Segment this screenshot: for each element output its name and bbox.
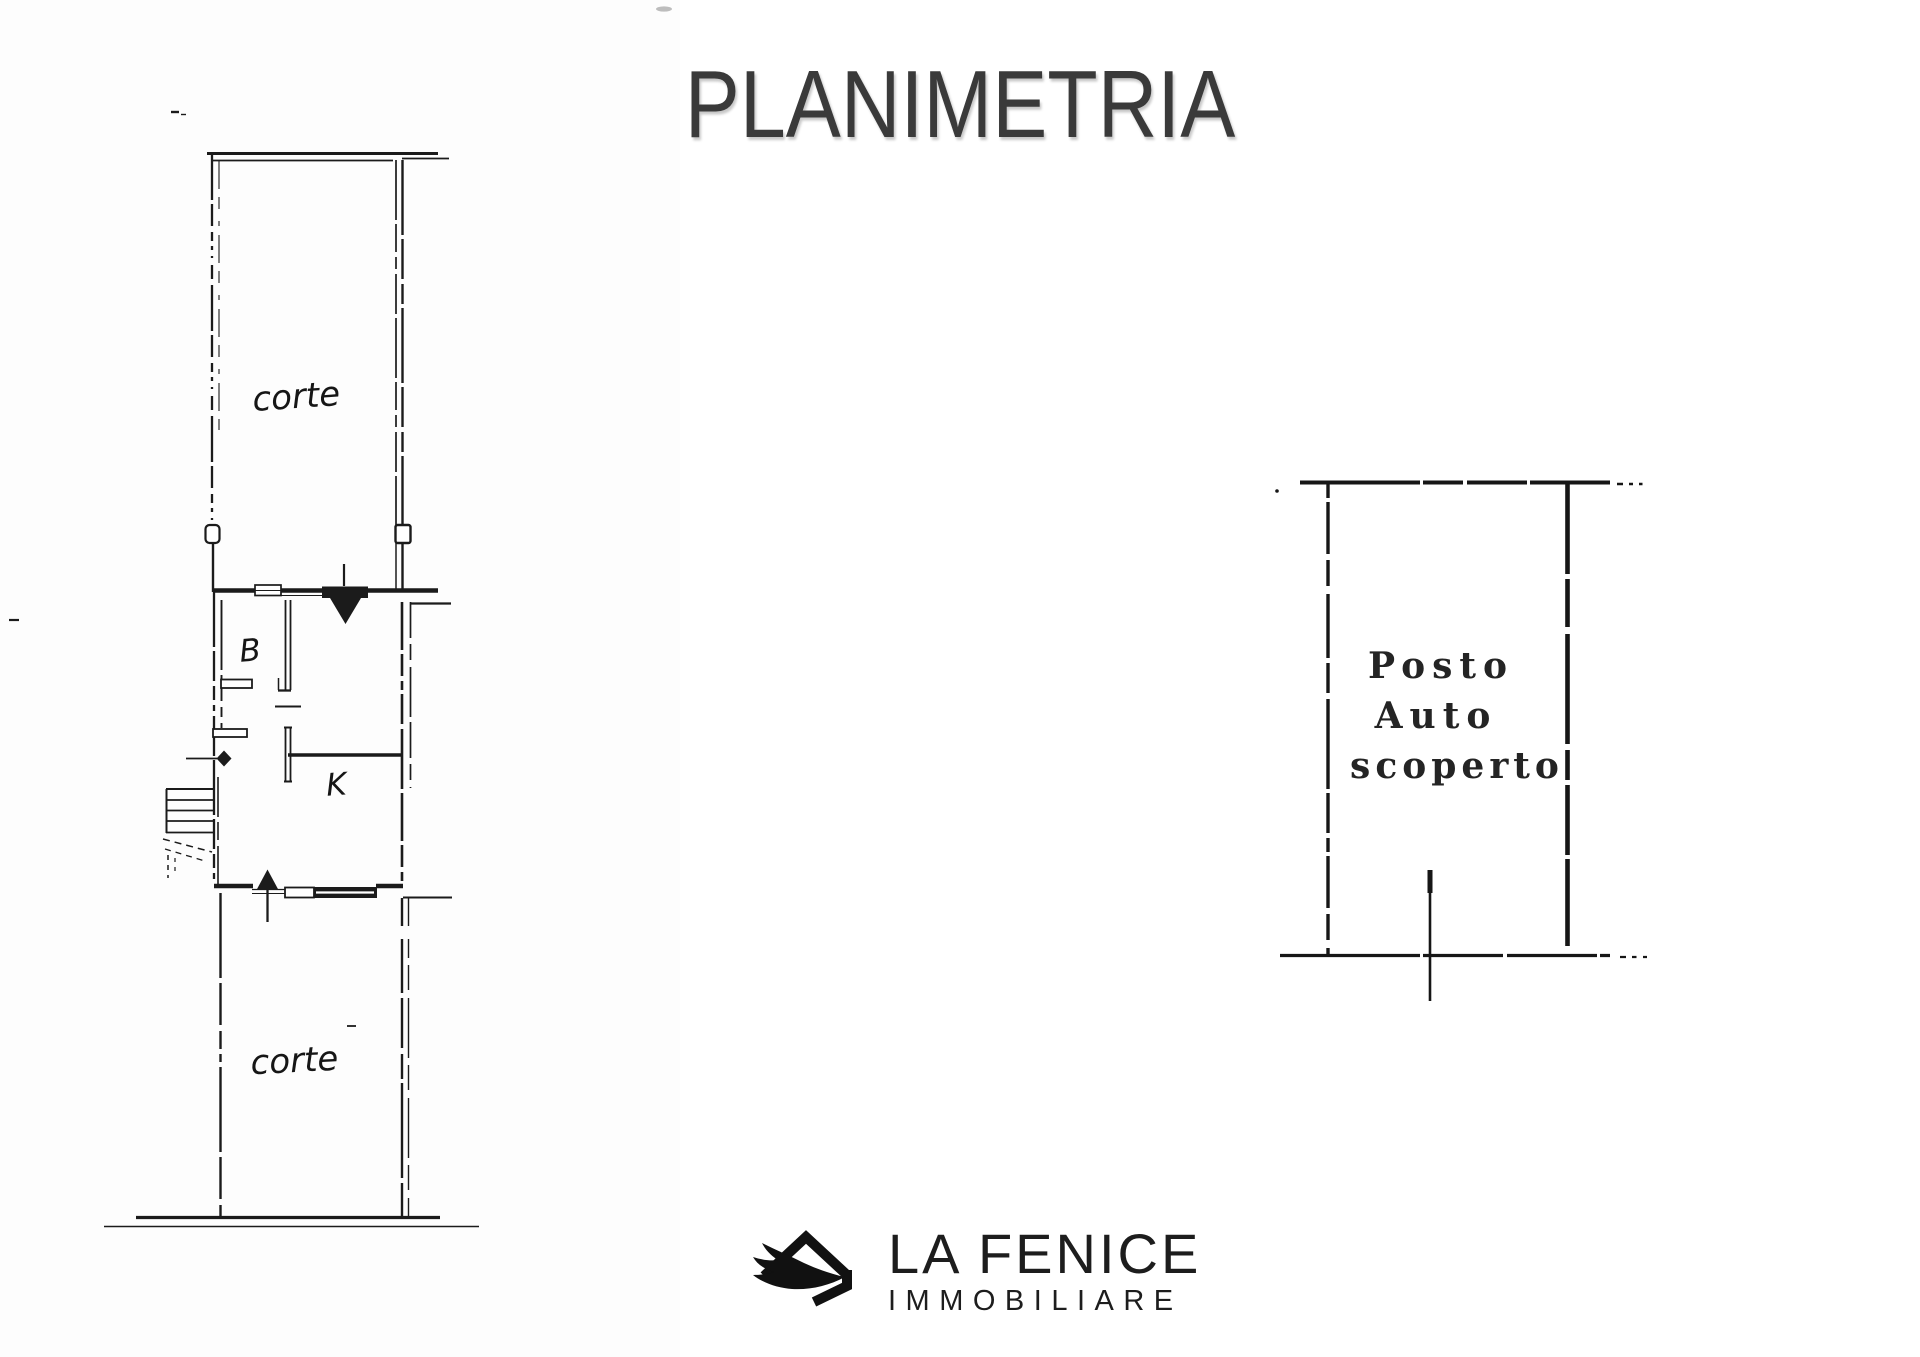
courtyard-top: corte	[206, 154, 450, 593]
side-entrance-marker	[186, 751, 232, 767]
agency-subtitle: IMMOBILIARE	[888, 1287, 1183, 1316]
building-bottom-wall	[214, 870, 452, 923]
agency-logo: LA FENICE IMMOBILIARE	[748, 1224, 1201, 1316]
phoenix-wing-house-icon	[748, 1224, 878, 1308]
wall-stub	[213, 729, 247, 737]
parking-boundary	[1275, 483, 1647, 1002]
agency-name: LA FENICE	[888, 1226, 1201, 1282]
room-k-label: K	[325, 766, 350, 804]
parking-label-line1: Posto	[1368, 645, 1514, 687]
agency-logo-text: LA FENICE IMMOBILIARE	[888, 1224, 1201, 1316]
planimetria-page: PLANIMETRIA corte	[0, 0, 1920, 1357]
scan-artifact-marks	[9, 112, 186, 620]
entrance-arrow-up-icon	[257, 870, 279, 923]
courtyard-bottom-label: corte	[250, 1039, 340, 1084]
wall-post-marker-left	[206, 525, 220, 543]
wall-stub	[221, 680, 252, 689]
wall-gap	[398, 926, 411, 939]
parking-label-line3: scoperto	[1350, 745, 1564, 787]
apartment-floor-plan: corte B	[0, 0, 520, 1260]
parking-spot-plan: Posto Auto scoperto	[1260, 460, 1680, 1020]
courtyard-bottom: corte	[104, 893, 479, 1227]
window-marker	[285, 888, 314, 898]
room-k: K	[284, 727, 401, 804]
entrance-threshold	[322, 587, 368, 599]
courtyard-top-label: corte	[251, 374, 341, 420]
parking-label: Posto Auto scoperto	[1350, 645, 1564, 787]
room-b-label: B	[238, 632, 262, 670]
building-top-wall	[214, 564, 451, 624]
wall-post-marker-right	[396, 525, 411, 543]
stairs	[163, 789, 214, 878]
left-outer-wall	[214, 592, 222, 884]
page-title-text: PLANIMETRIA	[685, 50, 1236, 160]
door-diamond-icon	[217, 751, 232, 767]
room-b: B	[213, 600, 301, 737]
right-outer-wall	[402, 602, 411, 884]
parking-label-line2: Auto	[1374, 695, 1498, 737]
scan-smudge	[640, 0, 700, 24]
